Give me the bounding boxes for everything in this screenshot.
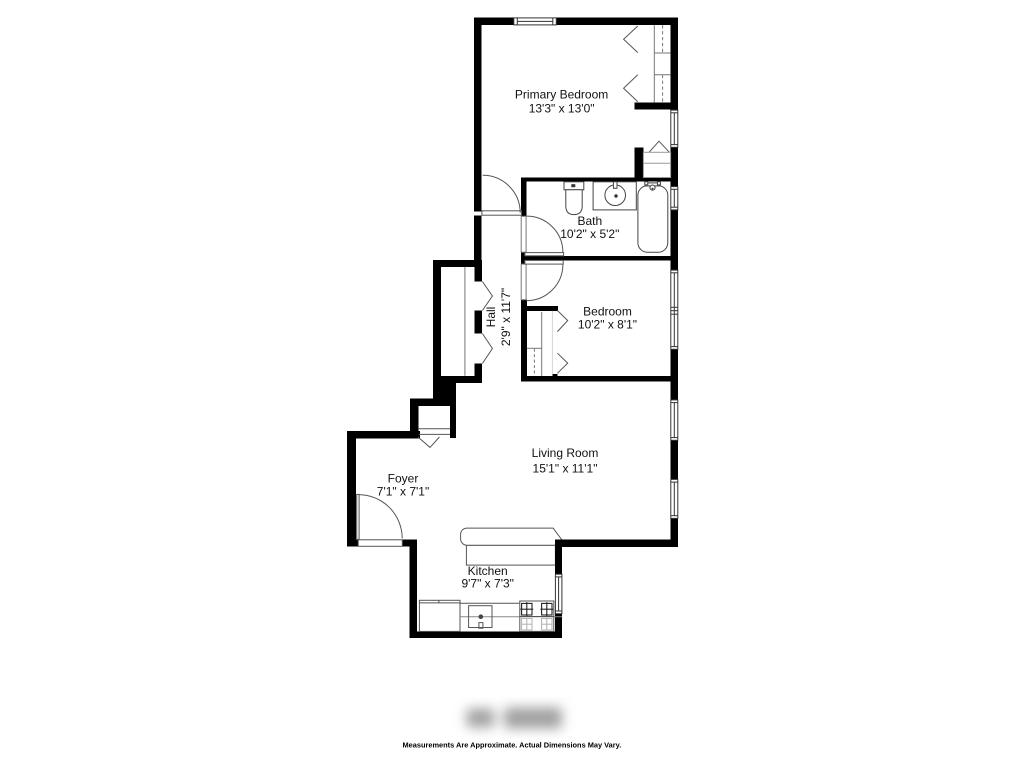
svg-text:15'1" x 11'1": 15'1" x 11'1" — [533, 462, 598, 476]
svg-text:2'9" x 11'7": 2'9" x 11'7" — [499, 288, 513, 346]
svg-text:Bath: Bath — [577, 214, 602, 228]
svg-text:Primary Bedroom: Primary Bedroom — [515, 88, 608, 102]
svg-text:Hall: Hall — [484, 307, 498, 328]
svg-text:Living Room: Living Room — [532, 446, 599, 460]
svg-text:13'3" x 13'0": 13'3" x 13'0" — [529, 101, 595, 115]
svg-text:Measurements Are Approximate.: Measurements Are Approximate. Actual Dim… — [403, 741, 622, 750]
svg-text:10'2" x 5'2": 10'2" x 5'2" — [560, 227, 619, 241]
svg-text:9'7" x 7'3": 9'7" x 7'3" — [461, 577, 513, 591]
svg-text:7'1" x 7'1": 7'1" x 7'1" — [377, 484, 429, 498]
svg-text:10'2" x 8'1": 10'2" x 8'1" — [578, 317, 637, 331]
